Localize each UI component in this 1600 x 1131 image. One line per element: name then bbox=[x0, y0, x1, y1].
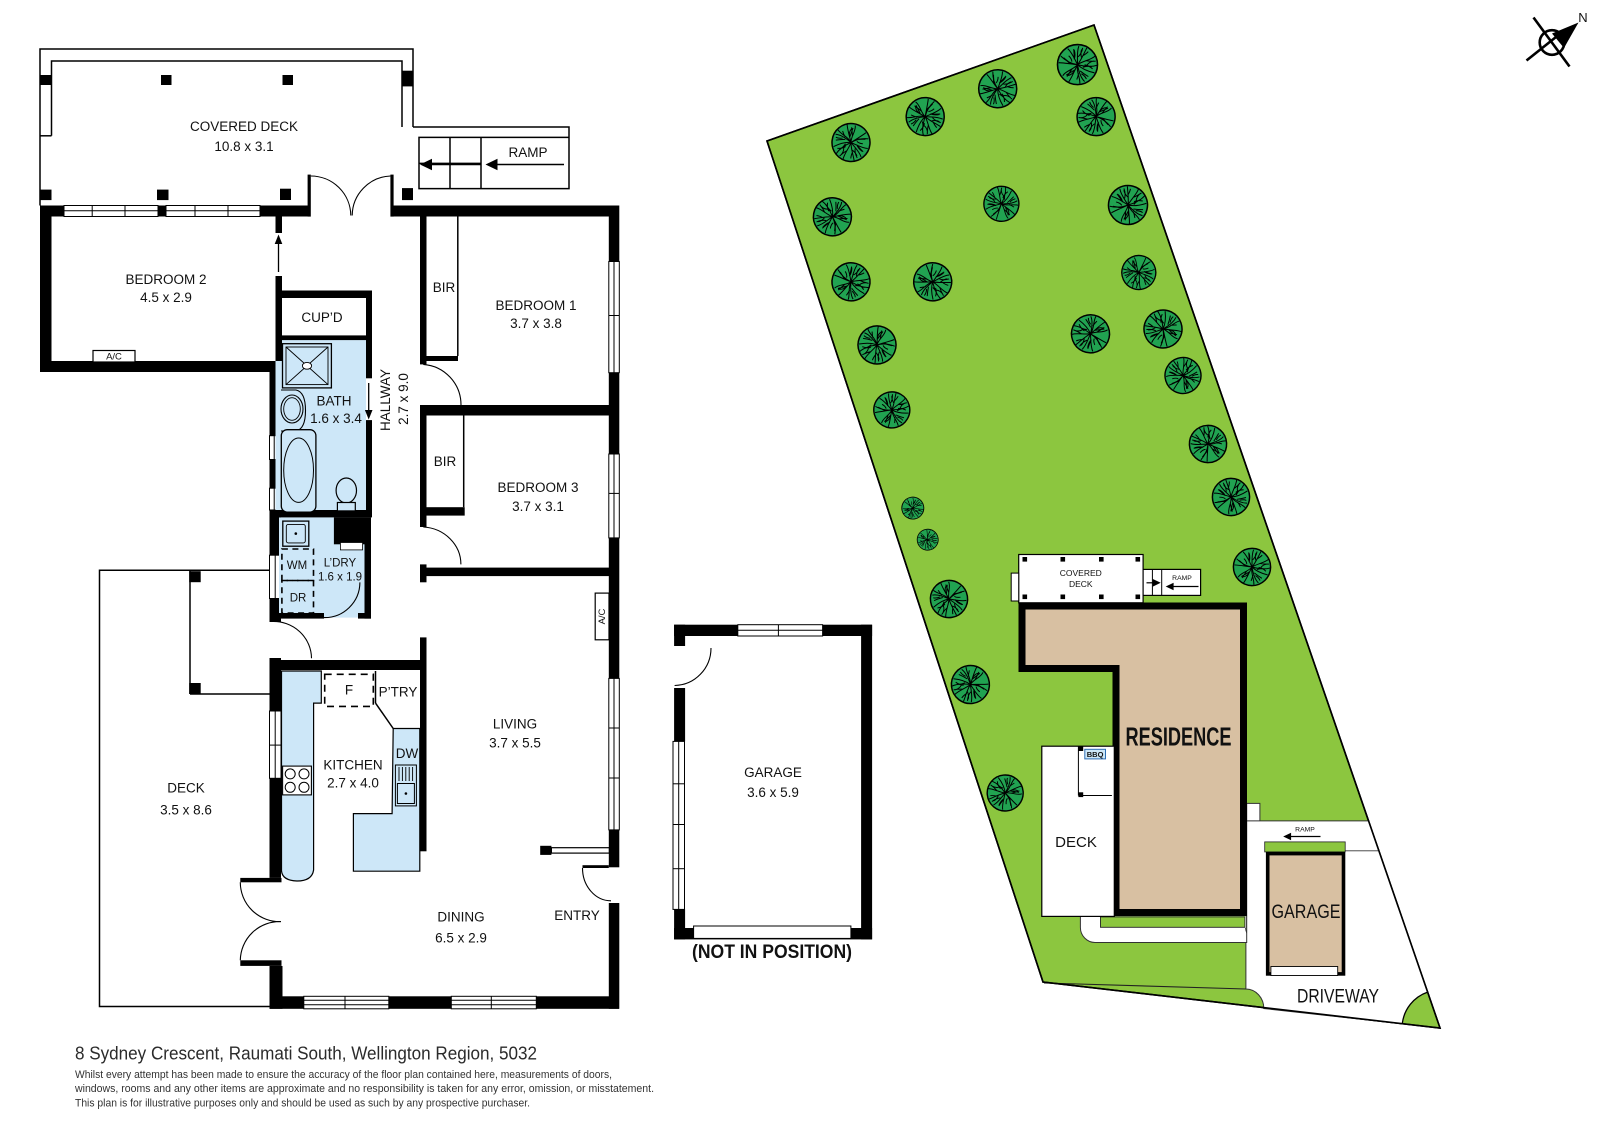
svg-text:DECK: DECK bbox=[167, 781, 205, 796]
svg-text:(NOT IN POSITION): (NOT IN POSITION) bbox=[692, 941, 852, 963]
svg-text:BEDROOM 2: BEDROOM 2 bbox=[125, 272, 206, 287]
svg-text:10.8 x 3.1: 10.8 x 3.1 bbox=[214, 139, 273, 154]
svg-text:BATH: BATH bbox=[316, 394, 351, 409]
svg-text:F: F bbox=[345, 683, 353, 698]
svg-text:DW: DW bbox=[396, 746, 419, 761]
svg-text:1.6 x 1.9: 1.6 x 1.9 bbox=[318, 572, 362, 584]
svg-text:RAMP: RAMP bbox=[1295, 827, 1315, 834]
svg-text:GARAGE: GARAGE bbox=[744, 765, 802, 780]
svg-text:BEDROOM 3: BEDROOM 3 bbox=[497, 480, 578, 495]
svg-text:RAMP: RAMP bbox=[1172, 575, 1192, 582]
svg-text:DECK: DECK bbox=[1069, 579, 1093, 589]
svg-text:A/C: A/C bbox=[106, 352, 122, 363]
svg-text:RESIDENCE: RESIDENCE bbox=[1126, 722, 1232, 752]
svg-text:DECK: DECK bbox=[1055, 834, 1097, 851]
svg-text:3.7 x 3.1: 3.7 x 3.1 bbox=[512, 499, 564, 514]
svg-text:2.7 x 9.0: 2.7 x 9.0 bbox=[396, 373, 411, 425]
svg-text:BIR: BIR bbox=[433, 280, 456, 295]
svg-text:8 Sydney Crescent, Raumati Sou: 8 Sydney Crescent, Raumati South, Wellin… bbox=[75, 1043, 537, 1064]
svg-text:CUP’D: CUP’D bbox=[301, 310, 343, 325]
svg-text:4.5 x 2.9: 4.5 x 2.9 bbox=[140, 290, 192, 305]
svg-text:DRIVEWAY: DRIVEWAY bbox=[1297, 987, 1379, 1008]
svg-text:ENTRY: ENTRY bbox=[554, 908, 600, 923]
svg-text:6.5 x 2.9: 6.5 x 2.9 bbox=[435, 931, 487, 946]
svg-text:3.7 x 3.8: 3.7 x 3.8 bbox=[510, 316, 562, 331]
svg-text:This plan is for illustrative: This plan is for illustrative purposes o… bbox=[75, 1097, 530, 1109]
svg-text:WM: WM bbox=[287, 560, 307, 572]
svg-text:Whilst every attempt has been: Whilst every attempt has been made to en… bbox=[75, 1069, 612, 1081]
svg-text:1.6 x 3.4: 1.6 x 3.4 bbox=[310, 411, 362, 426]
svg-text:DR: DR bbox=[290, 593, 307, 605]
svg-text:L’DRY: L’DRY bbox=[324, 558, 357, 570]
svg-text:3.5 x 8.6: 3.5 x 8.6 bbox=[160, 803, 212, 818]
svg-text:N: N bbox=[1578, 10, 1587, 25]
svg-text:2.7 x 4.0: 2.7 x 4.0 bbox=[327, 776, 379, 791]
svg-text:P’TRY: P’TRY bbox=[379, 685, 418, 700]
svg-text:COVERED: COVERED bbox=[1060, 568, 1102, 578]
svg-text:COVERED DECK: COVERED DECK bbox=[190, 119, 298, 134]
svg-text:LIVING: LIVING bbox=[493, 717, 537, 732]
svg-text:BEDROOM 1: BEDROOM 1 bbox=[495, 298, 576, 313]
svg-text:GARAGE: GARAGE bbox=[1272, 902, 1341, 923]
svg-text:BBQ: BBQ bbox=[1087, 750, 1104, 759]
svg-text:windows, rooms and any other i: windows, rooms and any other items are a… bbox=[74, 1083, 654, 1095]
svg-text:3.7 x 5.5: 3.7 x 5.5 bbox=[489, 736, 541, 751]
svg-text:RAMP: RAMP bbox=[508, 145, 547, 160]
svg-text:BIR: BIR bbox=[434, 454, 457, 469]
svg-text:A/C: A/C bbox=[597, 608, 608, 624]
svg-text:DINING: DINING bbox=[437, 910, 484, 925]
svg-text:HALLWAY: HALLWAY bbox=[378, 369, 393, 431]
svg-text:KITCHEN: KITCHEN bbox=[323, 758, 382, 773]
svg-text:3.6 x 5.9: 3.6 x 5.9 bbox=[747, 785, 799, 800]
